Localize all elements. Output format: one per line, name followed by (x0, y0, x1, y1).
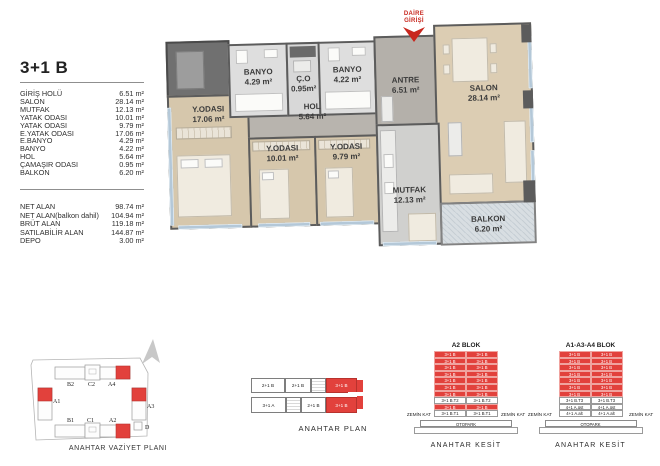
furniture-kitchen-sink (383, 154, 393, 168)
section-a1-a3-a4-blok: A1-A3-A4 BLOK 3+1 B3+1 B3+1 B3+1 B3+1 B3… (521, 340, 660, 458)
unit-info-panel: 3+1 B GİRİŞ HOLÜ6.51 m²SALON28.14 m²MUTF… (20, 58, 144, 246)
section-unit-cell: 3+1 B (434, 351, 466, 358)
section-unit-cell: 3+1 B (591, 364, 623, 371)
section-unit-cell: 3+1 B (591, 351, 623, 358)
building-c1 (85, 423, 100, 438)
furniture-pillow (204, 158, 222, 167)
section-a2-blok: A2 BLOK 3+1 B3+1 B3+1 B3+1 B3+1 B3+1 B3+… (400, 340, 532, 458)
room-kitchen: MUTFAK12.13 m² (376, 123, 443, 247)
site-plan-caption: ANAHTAR VAZİYET PLANI (38, 445, 198, 452)
furniture-toilet (236, 50, 248, 64)
room-area: 6.51 m² (392, 85, 420, 95)
section-unit-cell: 3+1 B (434, 377, 466, 384)
section-unit-cell: 4+1 A.alt (591, 410, 623, 417)
wall-stub (523, 90, 533, 108)
section-unit-cell: 3+1 B (559, 371, 591, 378)
section-unit-cell: 3+1 B (559, 364, 591, 371)
section-unit-cell: 3+1 B (466, 358, 498, 365)
section-unit-cell: 4+1 A.üst (559, 404, 591, 411)
section-unit-cell: 3+1 B (434, 358, 466, 365)
parking-level: OTOPARK (420, 420, 512, 427)
section-unit-cell: 3+1 B.T2 (466, 397, 498, 404)
key-plan: 2+1 B 2+1 B 3+1 B 3+1 A 2+1 B 3+1 B ANAH… (245, 368, 370, 438)
section-unit-cell: 3+1 B (591, 377, 623, 384)
room-antre: ANTRE6.51 m² (373, 35, 437, 127)
section-unit-cell: 3+1 B (559, 391, 591, 398)
room-label: ANTRE (392, 75, 420, 85)
parking-level: OTOPARK (545, 420, 637, 427)
area-row: BALKON6.20 m² (20, 169, 144, 177)
furniture-pillow (262, 172, 274, 180)
room-label: BALKON (471, 214, 505, 224)
furniture-elevator (176, 51, 205, 90)
room-label: Y.ODASI (192, 104, 224, 114)
block-label-c1: C1 (87, 418, 94, 424)
section-unit-cell: 4+1 A.alt (559, 410, 591, 417)
section-unit-cell: 3+1 B (591, 384, 623, 391)
window (178, 224, 242, 230)
room-area: 12.13 m² (394, 195, 426, 205)
room-label: Y.ODASI (330, 142, 362, 152)
room-label: MUTFAK (393, 185, 427, 195)
section-unit-cell: 3+1 B.T1 (466, 410, 498, 417)
building-a2-highlight (116, 424, 130, 438)
section-caption: ANAHTAR KESİT (521, 442, 660, 449)
area-row: DEPO3.00 m² (20, 237, 144, 246)
block-label-d: D (145, 425, 150, 431)
furniture-sink (352, 47, 366, 56)
room-area: 0.95m² (291, 83, 317, 93)
section-unit-cell: 3+1 B (466, 391, 498, 398)
key-plan-unit: 3+1 A (251, 397, 286, 413)
section-unit-cell: 3+1 B (559, 351, 591, 358)
section-unit-cell: 3+1 B (434, 364, 466, 371)
section-unit-cell: 3+1 B (434, 384, 466, 391)
section-title: A2 BLOK (400, 342, 532, 349)
building-a1-highlight (38, 388, 52, 401)
building-b2 (55, 367, 85, 379)
section-unit-cell: 3+1 B.T3 (559, 397, 591, 404)
stair-core (165, 40, 230, 98)
section-unit-cell: 4+1 A.üst (591, 404, 623, 411)
block-label-a4: A4 (108, 382, 115, 388)
furniture-washer (293, 60, 311, 72)
ground-floor-label: ZEMİN KAT (629, 412, 660, 417)
furniture-kitchen-table (408, 213, 437, 242)
apartment-floor-plan: HOL5.64 m² Y.ODASI17.06 m² BANYO4.29 m² … (165, 20, 537, 256)
section-unit-cell: 3+1 B (559, 377, 591, 384)
section-unit-cell: 3+1 B (466, 384, 498, 391)
ground-floor-label: ZEMİN KAT (400, 412, 431, 417)
block-label-a2: A2 (109, 418, 116, 424)
furniture-chair (490, 43, 497, 53)
furniture-wardrobe (176, 126, 232, 139)
section-unit-cell: 3+1 B (434, 391, 466, 398)
entrance-arrow-icon (403, 27, 425, 43)
building-a3-highlight (132, 388, 146, 401)
room-label: BANYO (244, 67, 273, 77)
room-area-list: GİRİŞ HOLÜ6.51 m²SALON28.14 m²MUTFAK12.1… (20, 90, 144, 177)
wall-stub (521, 24, 531, 42)
room-area: 10.01 m² (266, 153, 298, 163)
room-area: 9.79 m² (333, 151, 361, 161)
room-label: Y.ODASI (266, 143, 298, 153)
block-label-c2: C2 (88, 382, 95, 388)
section-caption: ANAHTAR KESİT (400, 442, 532, 449)
room-label: Ç.O (296, 74, 310, 83)
furniture-chair (443, 64, 450, 74)
block-label-a1: A1 (53, 399, 60, 405)
room-master-bedroom: Y.ODASI17.06 m² (167, 94, 252, 230)
window (258, 222, 310, 227)
section-unit-cell: 3+1 B.T3 (591, 397, 623, 404)
key-plan-caption: ANAHTAR PLAN (295, 424, 371, 433)
section-unit-cell: 3+1 B (591, 371, 623, 378)
basement-level (539, 427, 643, 434)
section-unit-cell: 3+1 B.T1 (434, 410, 466, 417)
shaft (290, 46, 316, 58)
building-b1 (55, 425, 85, 437)
block-label-b2: B2 (67, 382, 74, 388)
section-title: A1-A3-A4 BLOK (521, 342, 660, 349)
section-floor-stack: 3+1 B3+1 B3+1 B3+1 B3+1 B3+1 B3+1 B3+1 B… (434, 351, 498, 417)
furniture-pillow (181, 159, 199, 168)
building-a4-highlight (116, 366, 130, 379)
room-label: HOL (304, 102, 321, 111)
key-plan-unit-highlight: 3+1 B (326, 397, 357, 413)
section-unit-cell: 3+1 B (434, 404, 466, 411)
room-area: 28.14 m² (468, 93, 500, 103)
entrance-marker: DAİRE GİRİŞİ (392, 11, 436, 43)
window (320, 220, 374, 225)
furniture-tv-unit (448, 122, 463, 156)
divider (20, 82, 144, 83)
section-unit-cell: 3+1 B (434, 371, 466, 378)
unit-type-title: 3+1 B (20, 58, 144, 78)
furniture-sofa (504, 120, 528, 183)
room-area: 4.22 m² (334, 74, 362, 84)
key-plan-notch (348, 392, 363, 397)
key-plan-core (286, 397, 301, 413)
furniture-toilet (328, 47, 340, 61)
wall-stub (523, 180, 536, 202)
block-label-a3: A3 (147, 404, 154, 410)
building-c2 (85, 365, 100, 380)
room-label: BANYO (333, 65, 362, 75)
ground-floor-label: ZEMİN KAT (521, 412, 552, 417)
furniture-chair (443, 44, 450, 54)
section-unit-cell: 3+1 B.T2 (434, 397, 466, 404)
furniture-chair (490, 63, 497, 73)
section-unit-cell: 3+1 B (591, 358, 623, 365)
furniture-cabinet (381, 96, 394, 122)
section-unit-cell: 3+1 B (466, 364, 498, 371)
north-arrow-icon (142, 339, 160, 364)
basement-level (414, 427, 518, 434)
room-bedroom2: Y.ODASI9.79 m² (314, 134, 380, 226)
section-unit-cell: 3+1 B (466, 371, 498, 378)
section-floor-stack: 3+1 B3+1 B3+1 B3+1 B3+1 B3+1 B3+1 B3+1 B… (559, 351, 623, 417)
room-label: SALON (470, 83, 498, 93)
room-balcony: BALKON6.20 m² (440, 200, 537, 245)
section-unit-cell: 3+1 B (591, 391, 623, 398)
room-area: 5.64 m² (299, 111, 327, 121)
key-plan-unit: 2+1 B (301, 397, 326, 413)
site-key-plan: B2 C2 A4 A1 A3 B1 C1 A2 D (20, 338, 190, 450)
key-plan-unit: 2+1 B (285, 378, 311, 393)
room-bedroom1: Y.ODASI10.01 m² (248, 136, 318, 228)
section-unit-cell: 3+1 B (466, 404, 498, 411)
divider (20, 189, 144, 190)
section-unit-cell: 3+1 B (466, 377, 498, 384)
furniture-pillow (328, 170, 339, 178)
floor-plan-sheet: 3+1 B GİRİŞ HOLÜ6.51 m²SALON28.14 m²MUTF… (0, 0, 660, 466)
window (383, 241, 437, 246)
section-unit-cell: 3+1 B (466, 351, 498, 358)
room-area: 17.06 m² (192, 114, 224, 124)
entrance-label-line2: GİRİŞİ (392, 18, 436, 25)
furniture-sink (264, 49, 278, 58)
building-d (134, 422, 142, 430)
block-label-b1: B1 (67, 418, 74, 424)
furniture-sofa (449, 173, 494, 194)
room-salon: SALON28.14 m² (433, 22, 536, 205)
window (527, 36, 532, 88)
key-plan-core (311, 378, 326, 393)
section-unit-cell: 3+1 B (559, 358, 591, 365)
section-unit-cell: 3+1 B (559, 384, 591, 391)
room-area: 4.29 m² (245, 77, 273, 87)
key-plan-unit: 2+1 B (251, 378, 285, 393)
room-area: 6.20 m² (475, 224, 503, 234)
area-totals-list: NET ALAN98.74 m²NET ALAN(balkon dahil)10… (20, 203, 144, 246)
entrance-label-line1: DAİRE (392, 11, 436, 18)
furniture-dining-table (451, 37, 488, 82)
